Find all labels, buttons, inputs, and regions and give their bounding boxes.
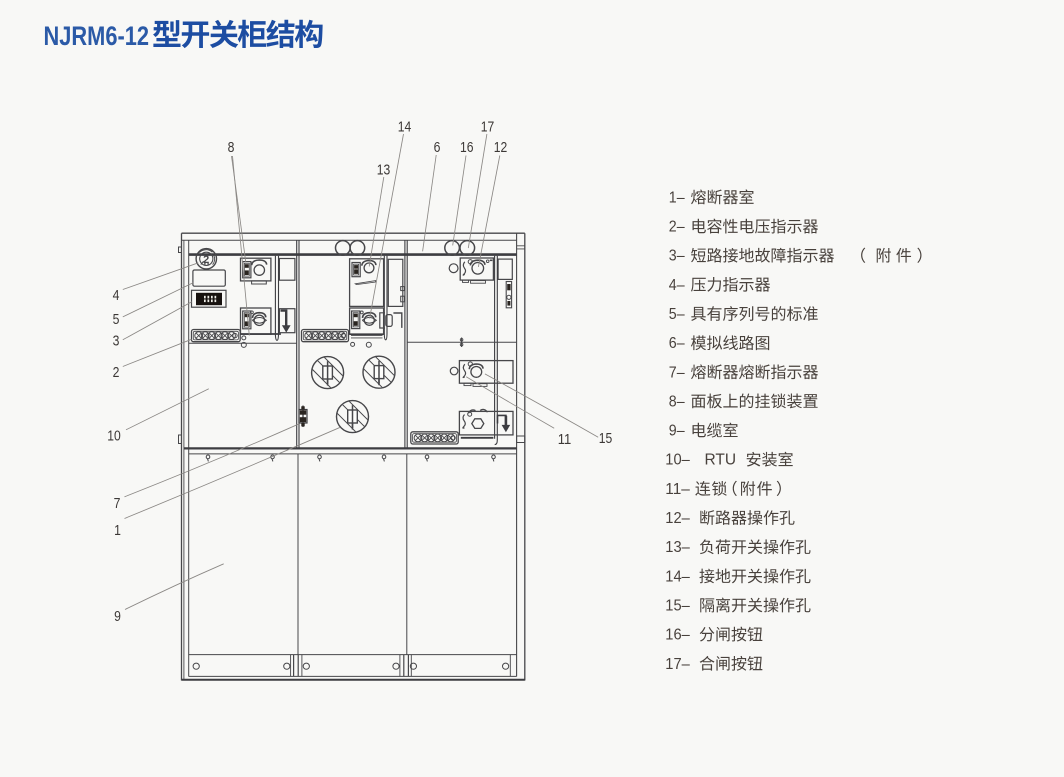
- svg-text:15–: 15–: [665, 598, 690, 615]
- svg-text:16–: 16–: [665, 627, 690, 644]
- svg-text:11–: 11–: [665, 481, 690, 498]
- svg-text:13–: 13–: [665, 539, 690, 556]
- svg-text:9: 9: [114, 609, 121, 625]
- svg-text:10–: 10–: [665, 452, 690, 469]
- svg-text:11: 11: [558, 432, 572, 448]
- svg-text:4: 4: [113, 288, 120, 304]
- svg-text:13: 13: [377, 163, 391, 179]
- svg-text:14: 14: [398, 120, 412, 136]
- svg-text:16: 16: [460, 140, 474, 156]
- svg-text:12: 12: [494, 140, 508, 156]
- svg-text:2–: 2–: [669, 219, 685, 236]
- svg-text:6–: 6–: [669, 335, 685, 352]
- svg-text:14–: 14–: [665, 568, 690, 585]
- svg-text:7–: 7–: [669, 364, 685, 381]
- svg-text:1–: 1–: [669, 189, 685, 206]
- svg-text:9–: 9–: [669, 423, 685, 440]
- svg-text:1: 1: [114, 523, 121, 539]
- svg-text:5: 5: [113, 312, 120, 328]
- svg-text:8–: 8–: [669, 393, 685, 410]
- svg-text:NJRM6-12: NJRM6-12: [44, 21, 150, 51]
- svg-text:RTU: RTU: [705, 452, 737, 469]
- svg-text:4–: 4–: [669, 277, 685, 294]
- svg-text:12–: 12–: [665, 510, 690, 527]
- svg-text:8: 8: [228, 140, 235, 156]
- svg-text:3–: 3–: [669, 248, 685, 265]
- svg-text:10: 10: [107, 429, 121, 445]
- svg-text:6: 6: [434, 140, 441, 156]
- svg-text:17–: 17–: [665, 656, 690, 673]
- svg-text:7: 7: [114, 496, 121, 512]
- svg-text:15: 15: [599, 431, 613, 447]
- svg-text:2: 2: [113, 365, 120, 381]
- svg-text:5–: 5–: [669, 306, 685, 323]
- svg-text:17: 17: [481, 120, 495, 136]
- svg-text:3: 3: [113, 334, 120, 350]
